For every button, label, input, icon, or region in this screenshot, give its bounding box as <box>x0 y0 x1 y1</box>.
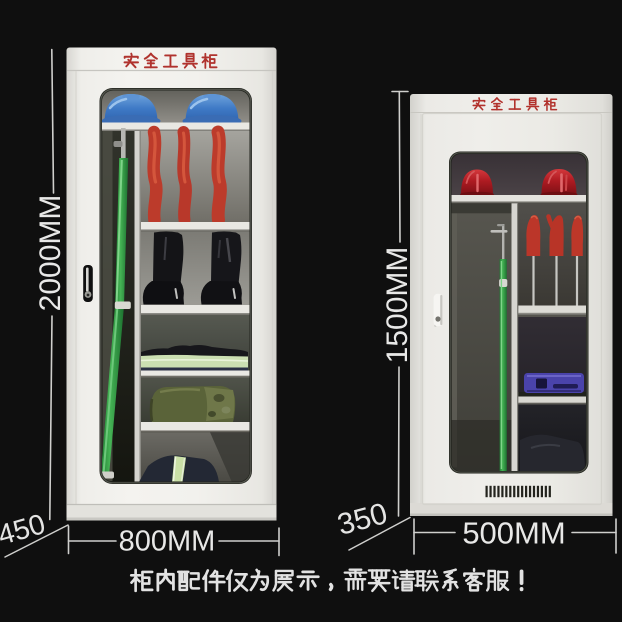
svg-text:800MM: 800MM <box>119 526 216 558</box>
svg-text:2000MM: 2000MM <box>34 195 67 312</box>
svg-text:1500MM: 1500MM <box>381 247 414 364</box>
svg-text:500MM: 500MM <box>462 516 565 551</box>
